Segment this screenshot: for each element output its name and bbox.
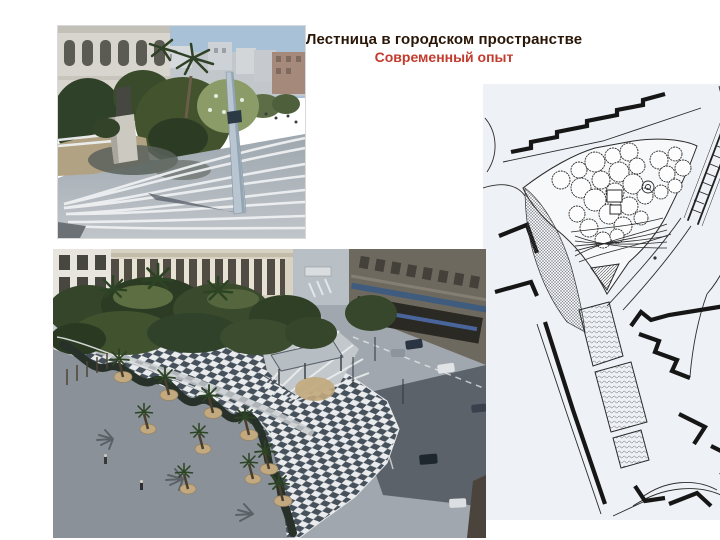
sand-patch (295, 377, 335, 401)
pole-panel (227, 110, 242, 124)
presentation-slide: Лестница в городском пространстве Соврем… (0, 0, 720, 540)
slide-subtitle: Современный опыт (268, 49, 620, 67)
title-block: Лестница в городском пространстве Соврем… (268, 30, 620, 67)
street-gap (293, 249, 353, 305)
photo-plaza-aerial (53, 249, 486, 538)
site-plan-drawing (483, 84, 720, 520)
slide-title: Лестница в городском пространстве (268, 30, 620, 49)
photo-plaza-monument (58, 26, 305, 238)
